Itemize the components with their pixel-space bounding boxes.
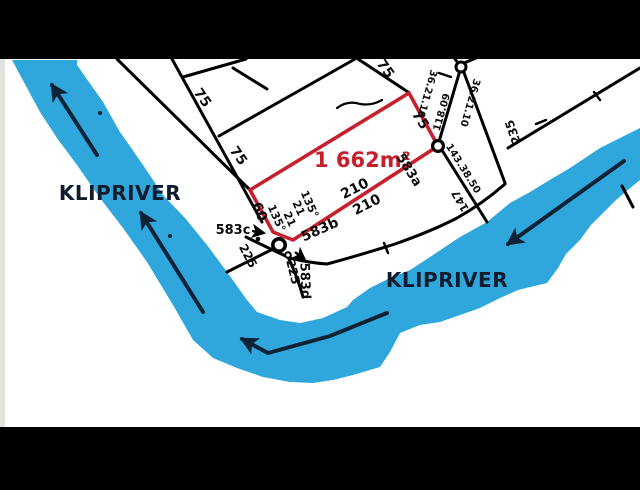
survey-beacon-small [285,252,291,258]
erf-583d-label: 583d [296,263,312,300]
river-name-left: KLIPRIVER [59,181,181,205]
black-bar-bottom [0,427,640,490]
river-name-right: KLIPRIVER [386,268,508,292]
survey-map-canvas: KLIPRIVER KLIPRIVER 1 662m² 75 75 75 75 … [0,0,640,490]
survey-map-page: KLIPRIVER KLIPRIVER 1 662m² 75 75 75 75 … [0,0,640,490]
river-speck [98,111,102,115]
scan-edge [0,59,5,427]
survey-beacon-north [456,62,466,72]
survey-dot [256,237,261,242]
river-speck [168,234,172,238]
survey-beacon-east [433,141,444,152]
survey-beacon-south [273,239,285,251]
black-bar-top [0,0,640,59]
erf-583c-label: 583c [216,223,251,238]
